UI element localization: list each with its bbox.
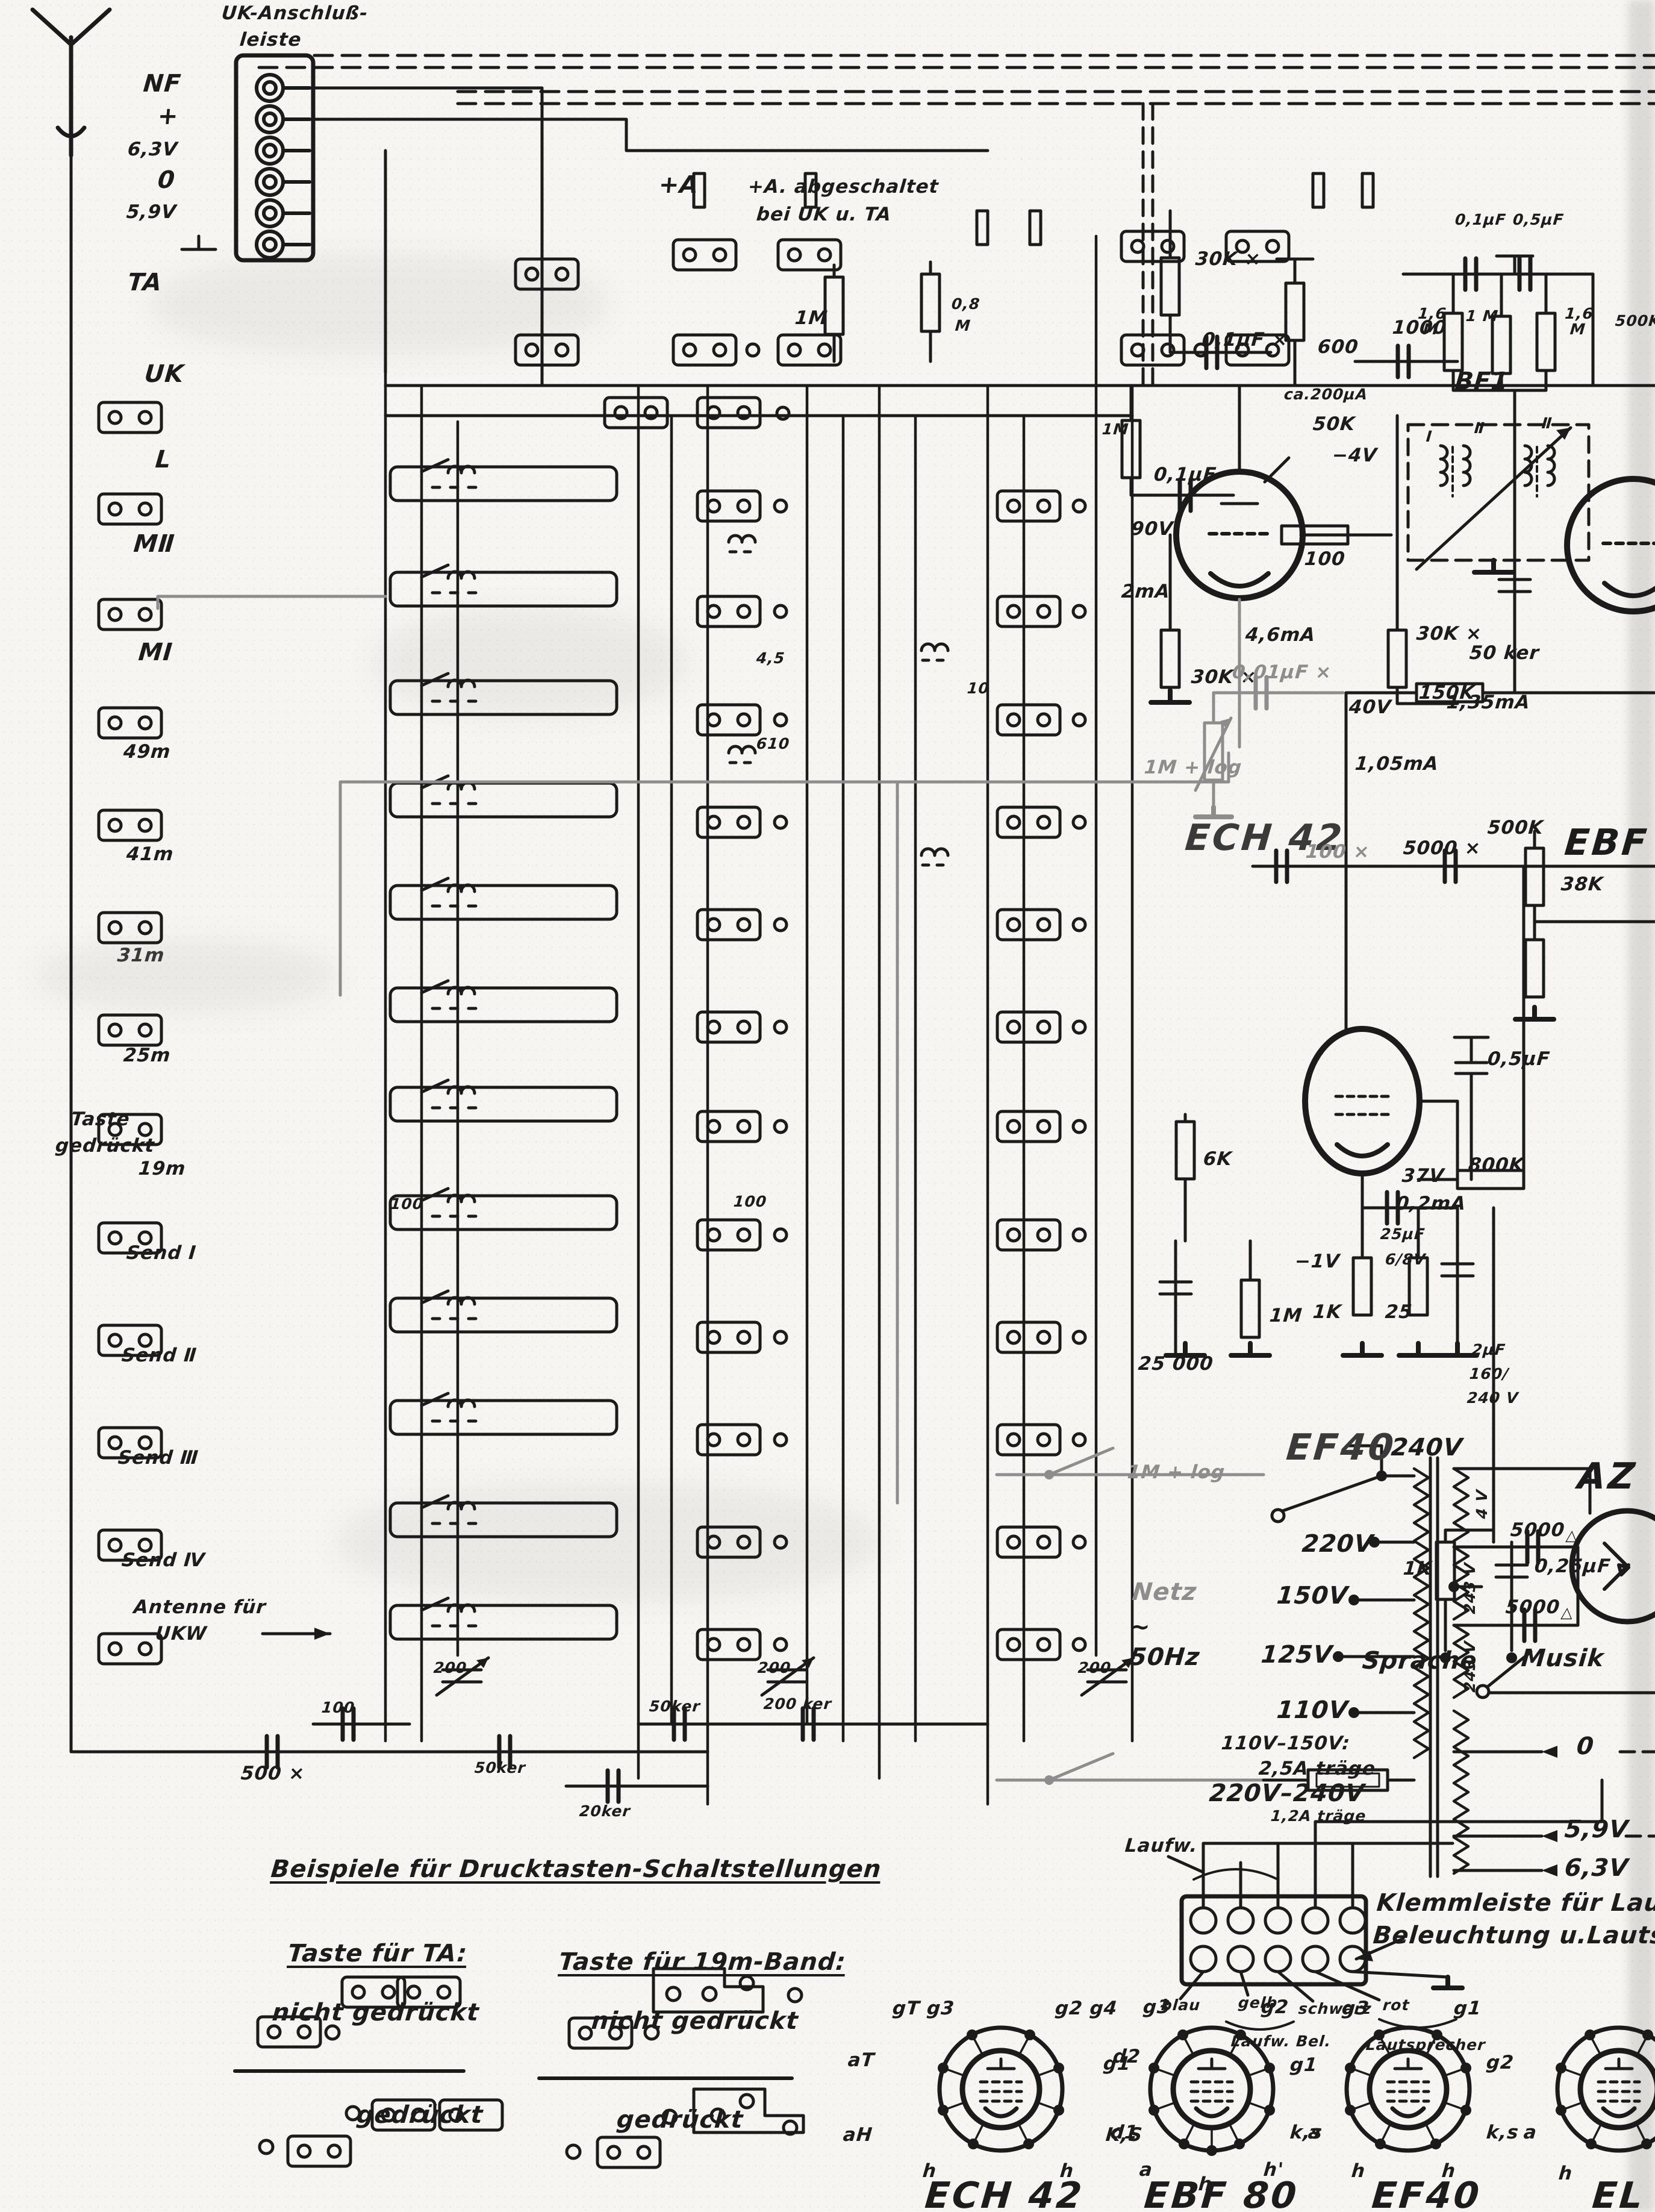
value-40v: 40V (1348, 698, 1392, 717)
value-500x: 500 × (240, 1764, 306, 1784)
band-label-send1: Send Ⅰ (126, 1243, 198, 1263)
value-100-b: 100 (733, 1194, 767, 1210)
value-240v: 240V (1390, 1435, 1463, 1460)
value-105ma: 1,05mA (1354, 754, 1440, 774)
legend-col-ta: Taste für TA: (287, 1941, 469, 1966)
value-out-0: 0 (1576, 1734, 1595, 1759)
value-2uf-c: 240 V (1466, 1390, 1519, 1406)
label-winding-3: Ⅱ (1541, 416, 1553, 431)
value-minus1v: −1V (1294, 1252, 1341, 1272)
band-label-19m: 19m (138, 1159, 187, 1179)
band-label-send2: Send Ⅱ (121, 1346, 198, 1366)
label-antenne-ukw-2: UKW (155, 1624, 208, 1644)
strip-title-1: UK-Anschluß- (221, 4, 369, 23)
legend-ged-2: gedrückt (616, 2107, 744, 2132)
value-6k: 6K (1203, 1149, 1233, 1169)
value-c5000-a: 5000 (1510, 1520, 1566, 1540)
label-50hz: 50Hz (1129, 1645, 1201, 1670)
band-label-25m: 25m (123, 1046, 172, 1066)
wire-color-rot: rot (1382, 1998, 1410, 2013)
strip-title-2: leiste (239, 30, 302, 50)
value-125v: 125V (1260, 1642, 1333, 1667)
scan-edge-shadow (1629, 0, 1655, 2212)
pin-ech42-at: aT (847, 2051, 876, 2070)
band-label-send4: Send Ⅳ (121, 1551, 206, 1570)
value-45: 4,5 (756, 651, 786, 666)
value-25uf-v: 6/8V (1385, 1252, 1427, 1267)
pin-ef40-a: a (1307, 2123, 1323, 2143)
band-label-uk: UK (143, 361, 185, 387)
value-1m-top: 1M (794, 308, 829, 328)
label-musik: Musik (1520, 1646, 1605, 1671)
value-out-59v: 5,9V (1563, 1817, 1630, 1842)
value-01uf-x: 0,1µF × (1202, 330, 1289, 350)
pin-ebf80-d2: d2 (1112, 2047, 1142, 2067)
watermark (36, 940, 337, 1012)
value-37v: 37V (1401, 1166, 1445, 1186)
note-taste: Taste (70, 1110, 131, 1129)
pin-ef40-g1: g1 (1453, 1999, 1483, 2019)
note-fuse-4: 1,2A träge (1270, 1808, 1367, 1824)
label-netz: Netz (1131, 1579, 1198, 1605)
label-bf1: BF1 (1454, 369, 1509, 394)
value-08m-b: M (955, 318, 971, 334)
value-01uf: 0,1µF (1153, 465, 1218, 485)
value-110v: 110V (1276, 1698, 1349, 1723)
value-1m-ech: 1M (1102, 422, 1130, 437)
schematic-page: UK-Anschluß- leiste NF + 6,3V 0 5,9V TA … (0, 0, 1655, 2212)
label-tilde: ~ (1129, 1614, 1152, 1640)
value-ebf-16m-a: 1,6 M (1413, 306, 1451, 338)
band-label-l: L (154, 447, 172, 472)
label-laufw-bel: Laufw. Bel. (1230, 2034, 1332, 2049)
caption-klemmleiste-1: Klemmleiste für Laufwer (1376, 1890, 1655, 1916)
terminal-label-59v: 5,9V (126, 202, 178, 222)
label-lautsprecher: Lautsprecher (1365, 2037, 1486, 2053)
value-out-63v: 6,3V (1563, 1855, 1630, 1881)
legend-ged-1: gedrückt (355, 2102, 484, 2128)
label-antenne-ukw-1: Antenne für (133, 1598, 267, 1617)
value-sec-243v-b: 243 V (1462, 1640, 1478, 1693)
value-1k-b: 1K (1403, 1559, 1433, 1579)
note-abgeschaltet-2: bei UK u. TA (756, 205, 893, 225)
value-150v: 150V (1276, 1583, 1349, 1608)
pinout-name-ebf80: EBF 80 (1142, 2177, 1300, 2212)
band-label-41m: 41m (126, 845, 175, 864)
note-fuse-2: 2,5A träge (1258, 1759, 1377, 1779)
value-25: 25 (1385, 1302, 1413, 1322)
value-2uf-a: 2µF (1471, 1342, 1506, 1358)
pin-el-a: a (1523, 2123, 1538, 2143)
value-sec-4v: 4 V (1474, 1489, 1490, 1520)
value-100-a: 100 (390, 1196, 424, 1212)
band-label-49m: 49m (123, 742, 172, 762)
legend-nicht-1: nicht gedrückt (271, 2000, 480, 2025)
value-800k: 800K (1468, 1155, 1526, 1175)
label-winding-2: Ⅱ (1474, 420, 1486, 436)
note-fuse-3: 220V–240V (1208, 1781, 1366, 1806)
pin-ech42-ah: aH (843, 2125, 874, 2145)
note-gedrueckt: gedrückt (55, 1136, 155, 1156)
band-label-send3: Send Ⅲ (117, 1448, 200, 1468)
band-label-m2: MⅡ (132, 531, 176, 557)
value-2ma: 2mA (1121, 582, 1171, 602)
value-c5000-b: 5000 (1505, 1598, 1561, 1617)
value-05uf-ef: 0,5µF (1487, 1049, 1551, 1069)
pin-ech42-g2g4: g2 g4 (1055, 1999, 1118, 2019)
value-610: 610 (756, 736, 790, 752)
value-ebf-1m: 1 M (1464, 308, 1500, 324)
legend-title: Beispiele für Drucktasten-Schaltstellung… (270, 1857, 882, 1882)
value-200-b: 200 (757, 1660, 791, 1676)
value-25uf: 25µF (1380, 1226, 1426, 1242)
legend-col-19m: Taste für 19m-Band: (558, 1949, 847, 1975)
value-ebf-05uf: 0,5µF (1512, 212, 1565, 228)
triangle-icon: △ (1565, 1528, 1579, 1543)
pin-ef40-ks: k,s (1486, 2123, 1520, 2143)
value-100-c: 100 (321, 1700, 355, 1716)
pinout-name-ef40: EF40 (1370, 2177, 1483, 2212)
watermark (337, 1482, 879, 1602)
value-100-ech: 100 (1304, 549, 1347, 569)
terminal-label-63v: 6,3V (127, 140, 179, 160)
value-pot2: 1M + log (1127, 1463, 1226, 1482)
label-plus-a: +A (658, 172, 700, 198)
value-46ma: 4,6mA (1245, 625, 1317, 645)
value-1m-ef: 1M (1269, 1306, 1303, 1326)
pin-ebf80-g2: g2 (1261, 1998, 1290, 2017)
value-08m-a: 0,8 (951, 296, 981, 312)
value-pot1: 1M + log (1144, 758, 1243, 778)
value-200-c: 200 (1077, 1660, 1112, 1676)
label-laufw: Laufw. (1124, 1836, 1199, 1856)
value-50k: 50K (1312, 414, 1356, 434)
terminal-label-plus: + (157, 104, 179, 129)
pin-ef40-g2: g2 (1486, 2053, 1515, 2073)
pin-ebf80-g1: g1 (1289, 2055, 1319, 2075)
value-20ker: 20ker (579, 1804, 631, 1819)
pin-ef40-h1: h (1351, 2161, 1367, 2181)
watermark (373, 608, 687, 717)
value-10: 10 (967, 681, 990, 696)
pin-ebf80-g3: g3 (1142, 1998, 1172, 2017)
value-90v: 90V (1130, 519, 1174, 539)
value-025uf: 0,25µF (1534, 1557, 1612, 1576)
value-200-a: 200 (433, 1660, 467, 1676)
value-30k-a: 30K × (1195, 249, 1262, 269)
caption-klemmleiste-2: Beleuchtung u.Lautsprech (1372, 1923, 1655, 1948)
value-ebf-01uf: 0,1µF (1454, 212, 1507, 228)
value-100x: 100 × (1305, 842, 1371, 862)
value-150k: 150K (1418, 683, 1476, 703)
value-600: 600 (1317, 337, 1360, 357)
terminal-label-0: 0 (157, 167, 176, 193)
value-2uf-b: 160/ (1469, 1366, 1510, 1382)
legend-nicht-2: nicht gedrückt (590, 2008, 799, 2034)
note-abgeschaltet-1: +A. abgeschaltet (747, 177, 940, 197)
pin-ech42-gtg3: gT g3 (892, 1999, 956, 2019)
value-ebf-16m-b: 1,6 M (1560, 306, 1598, 338)
value-001uf: 0,01µF × (1232, 663, 1333, 683)
note-fuse-1: 110V–150V: (1221, 1734, 1351, 1754)
value-minus4v: −4V (1332, 446, 1378, 466)
value-220v: 220V (1301, 1531, 1374, 1557)
value-sec-243v-a: 243 V (1462, 1562, 1478, 1615)
value-30k-c: 30K × (1416, 624, 1483, 644)
tube-name-ef40: EF40 (1285, 1429, 1397, 1467)
pinout-name-ech42: ECH 42 (923, 2177, 1085, 2212)
value-50ker-b: 50ker (649, 1699, 701, 1714)
pin-el-h: h (1558, 2164, 1574, 2184)
value-ca200ua: ca.200µA (1283, 387, 1368, 402)
pin-ef40-g3: g3 (1341, 1999, 1371, 2019)
band-label-m1: MⅠ (137, 640, 173, 665)
value-ebf-500k: 500K (1487, 818, 1545, 838)
value-1k-a: 1K (1312, 1302, 1342, 1322)
value-200ker: 200 ker (763, 1696, 832, 1712)
watermark (151, 253, 608, 355)
value-02ma: 0,2mA (1395, 1194, 1467, 1214)
value-25000: 25 000 (1138, 1354, 1215, 1374)
value-50ker-a: 50ker (474, 1760, 526, 1776)
value-ebf-50ker: 50 ker (1469, 643, 1541, 663)
value-ebf-38k: 38K (1560, 875, 1604, 895)
pin-ebf80-d1: d1 (1110, 2123, 1139, 2143)
triangle-icon: △ (1560, 1605, 1574, 1620)
value-5000x: 5000 × (1403, 839, 1482, 858)
terminal-label-nf: NF (142, 71, 182, 96)
